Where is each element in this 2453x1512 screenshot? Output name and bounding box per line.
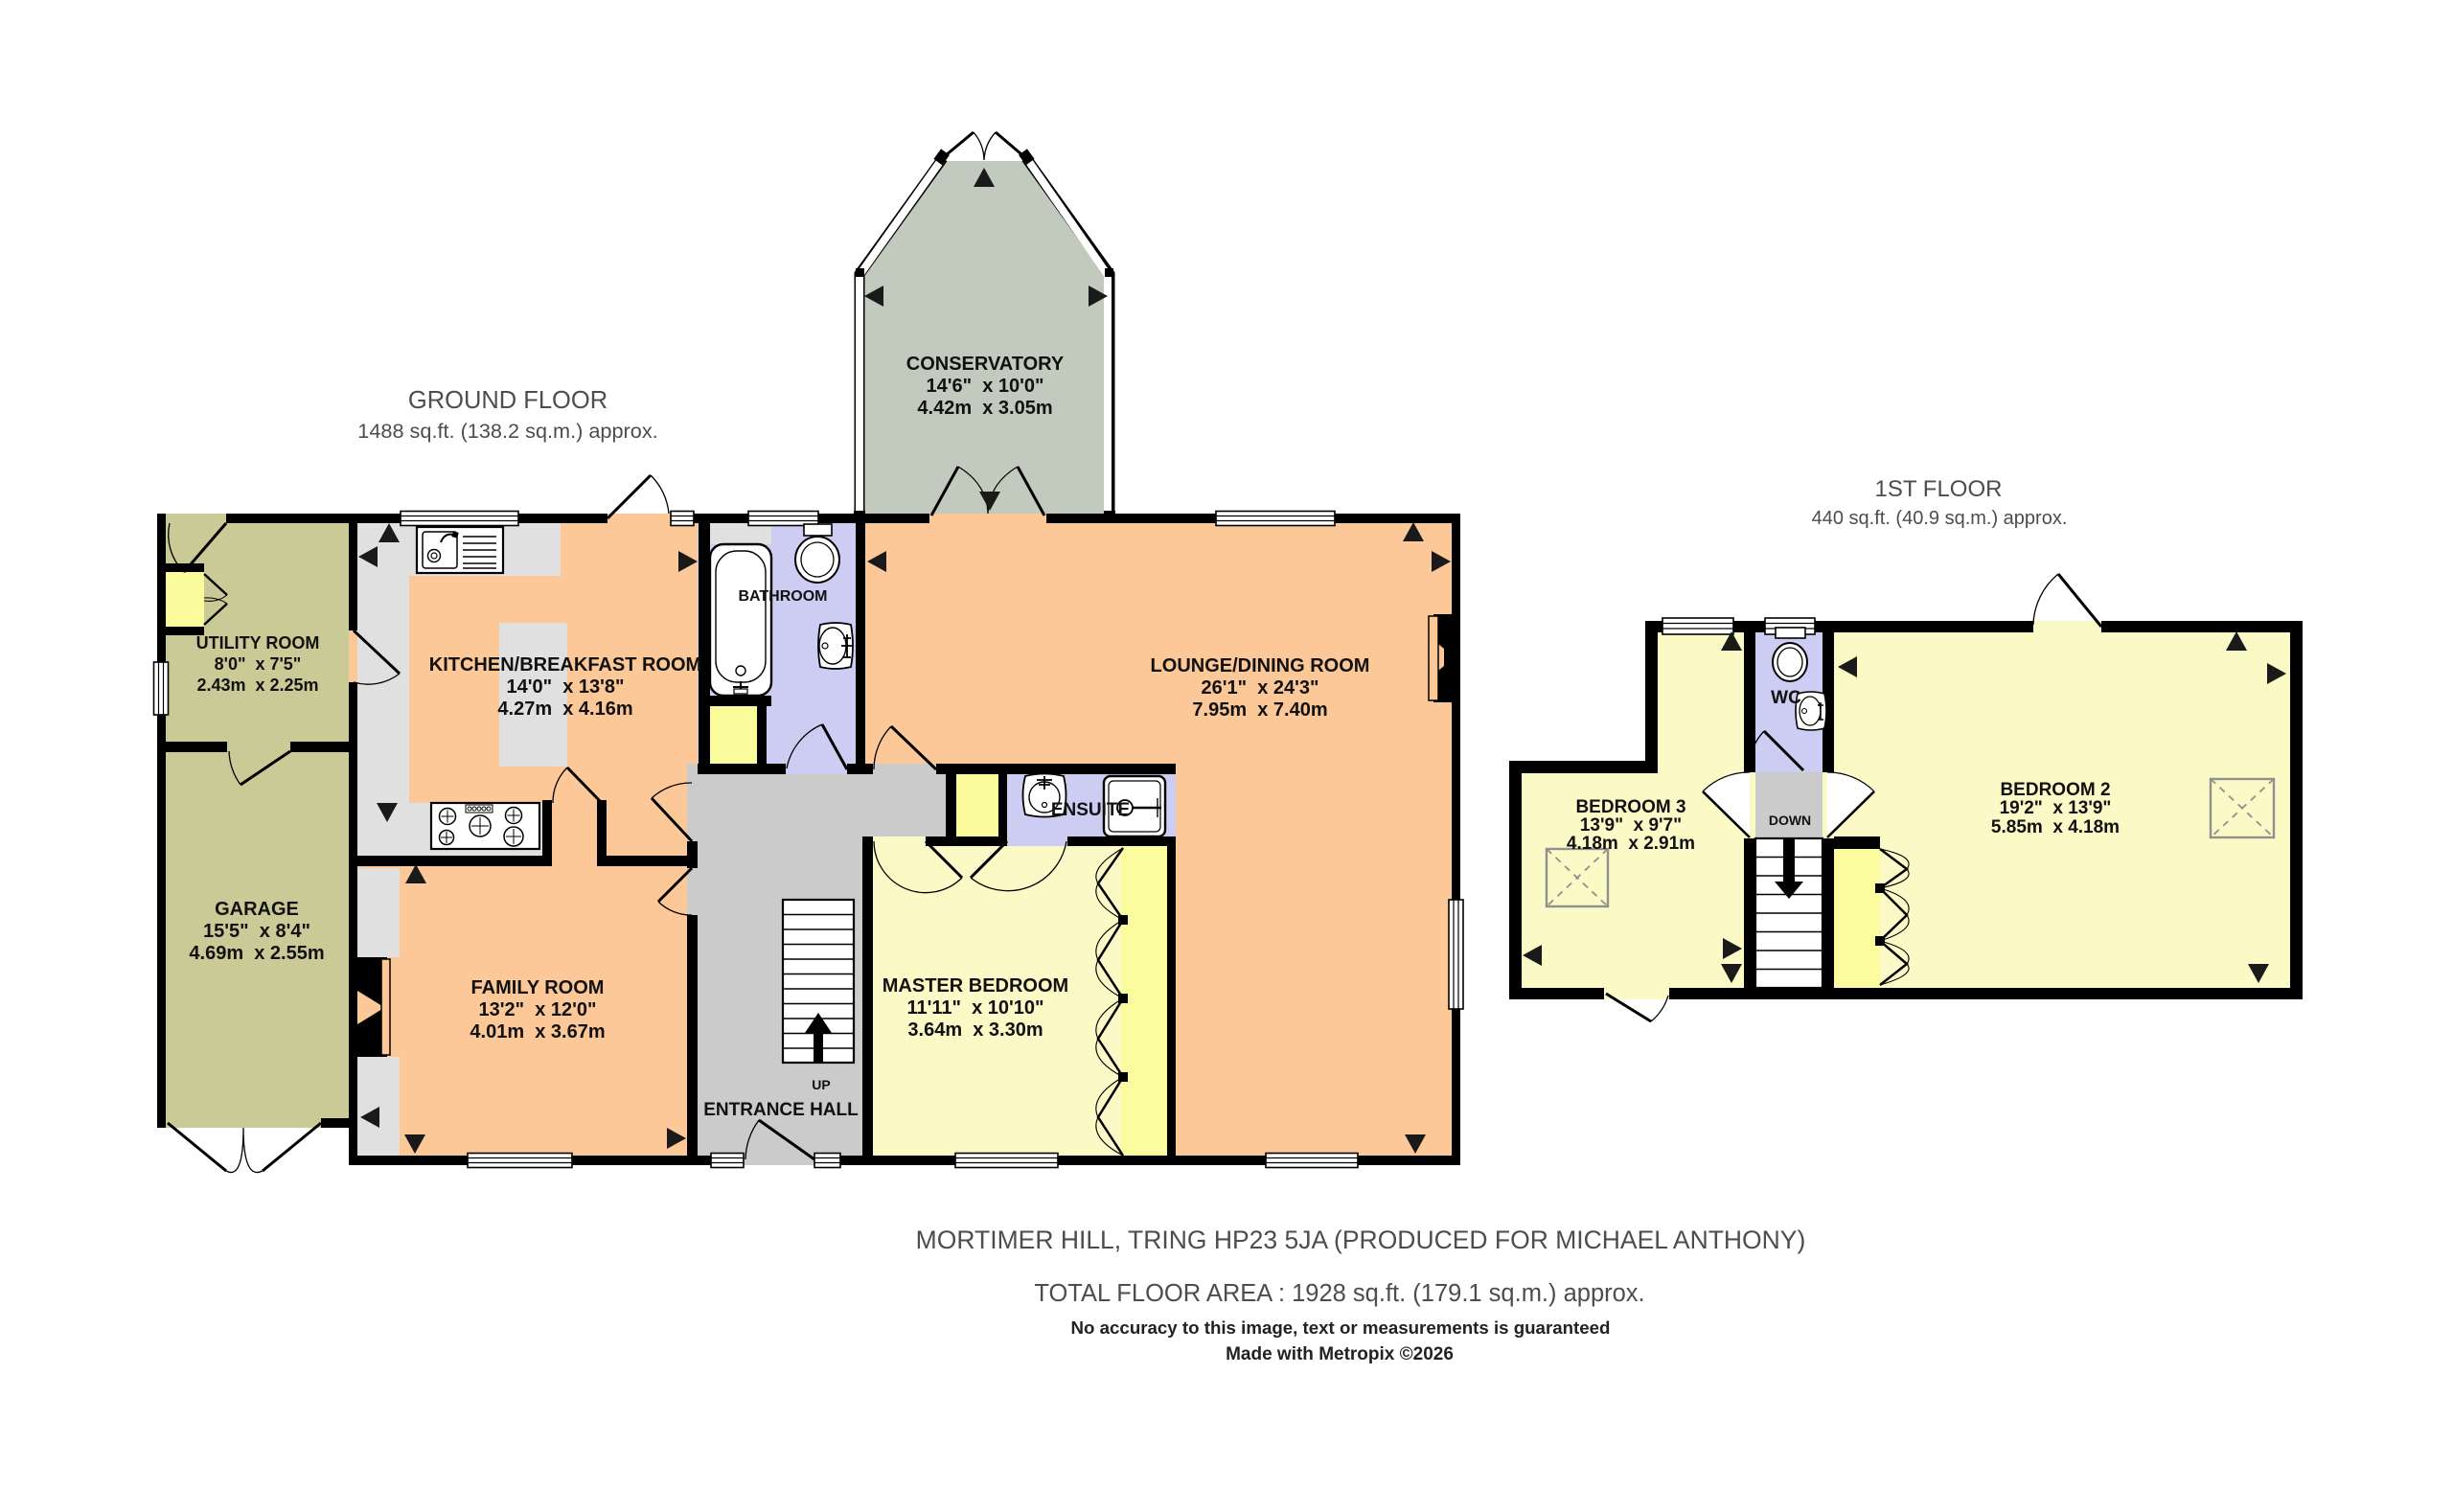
svg-text:BEDROOM 2: BEDROOM 2 [2000, 780, 2110, 800]
svg-text:4.18m x 2.91m: 4.18m x 2.91m [1567, 834, 1695, 854]
svg-text:13'2" x 12'0": 13'2" x 12'0" [478, 999, 596, 1020]
svg-text:Made with Metropix ©2026: Made with Metropix ©2026 [1226, 1344, 1454, 1364]
svg-text:BATHROOM: BATHROOM [738, 588, 827, 605]
svg-text:ENSUITE: ENSUITE [1051, 800, 1130, 820]
svg-text:5.85m x 4.18m: 5.85m x 4.18m [1991, 817, 2120, 837]
svg-text:MORTIMER HILL, TRING HP23 5JA: MORTIMER HILL, TRING HP23 5JA (PRODUCED … [916, 1226, 1806, 1254]
svg-text:15'5" x 8'4": 15'5" x 8'4" [203, 921, 310, 942]
svg-text:No accuracy to this image, tex: No accuracy to this image, text or measu… [1071, 1317, 1611, 1338]
svg-text:1488 sq.ft. (138.2 sq.m.) appr: 1488 sq.ft. (138.2 sq.m.) approx. [357, 419, 657, 443]
svg-text:GROUND FLOOR: GROUND FLOOR [408, 387, 608, 414]
svg-text:4.69m x 2.55m: 4.69m x 2.55m [189, 943, 324, 964]
svg-text:440 sq.ft. (40.9 sq.m.) approx: 440 sq.ft. (40.9 sq.m.) approx. [1812, 508, 2068, 529]
svg-text:3.64m x 3.30m: 3.64m x 3.30m [907, 1019, 1043, 1041]
svg-text:4.27m x 4.16m: 4.27m x 4.16m [497, 699, 632, 720]
svg-text:MASTER BEDROOM: MASTER BEDROOM [883, 975, 1068, 997]
svg-text:26'1" x 24'3": 26'1" x 24'3" [1201, 677, 1318, 699]
svg-text:FAMILY ROOM: FAMILY ROOM [471, 977, 605, 998]
svg-text:11'11" x 10'10": 11'11" x 10'10" [906, 997, 1043, 1019]
svg-text:2.43m x 2.25m: 2.43m x 2.25m [196, 676, 318, 695]
svg-text:KITCHEN/BREAKFAST ROOM: KITCHEN/BREAKFAST ROOM [429, 654, 701, 676]
svg-text:WC: WC [1771, 688, 1801, 708]
svg-text:UP: UP [812, 1077, 830, 1092]
svg-text:TOTAL FLOOR AREA : 1928 sq.ft.: TOTAL FLOOR AREA : 1928 sq.ft. (179.1 sq… [1034, 1280, 1644, 1307]
svg-text:7.95m x 7.40m: 7.95m x 7.40m [1192, 699, 1327, 721]
svg-text:ENTRANCE HALL: ENTRANCE HALL [703, 1100, 859, 1120]
svg-text:4.01m x 3.67m: 4.01m x 3.67m [470, 1021, 605, 1042]
svg-text:GARAGE: GARAGE [215, 899, 299, 920]
svg-text:13'9" x 9'7": 13'9" x 9'7" [1580, 815, 1682, 836]
svg-text:CONSERVATORY: CONSERVATORY [906, 354, 1065, 375]
svg-text:BEDROOM 3: BEDROOM 3 [1575, 797, 1685, 817]
svg-text:14'6" x 10'0": 14'6" x 10'0" [926, 376, 1043, 397]
svg-text:19'2" x 13'9": 19'2" x 13'9" [2000, 798, 2112, 818]
svg-text:8'0" x 7'5": 8'0" x 7'5" [215, 654, 302, 674]
svg-text:4.42m x 3.05m: 4.42m x 3.05m [917, 398, 1052, 419]
svg-text:LOUNGE/DINING ROOM: LOUNGE/DINING ROOM [1151, 655, 1370, 676]
svg-text:14'0" x 13'8": 14'0" x 13'8" [506, 676, 624, 698]
svg-text:1ST FLOOR: 1ST FLOOR [1875, 476, 2003, 502]
svg-text:DOWN: DOWN [1769, 813, 1811, 828]
svg-text:UTILITY ROOM: UTILITY ROOM [196, 633, 320, 653]
